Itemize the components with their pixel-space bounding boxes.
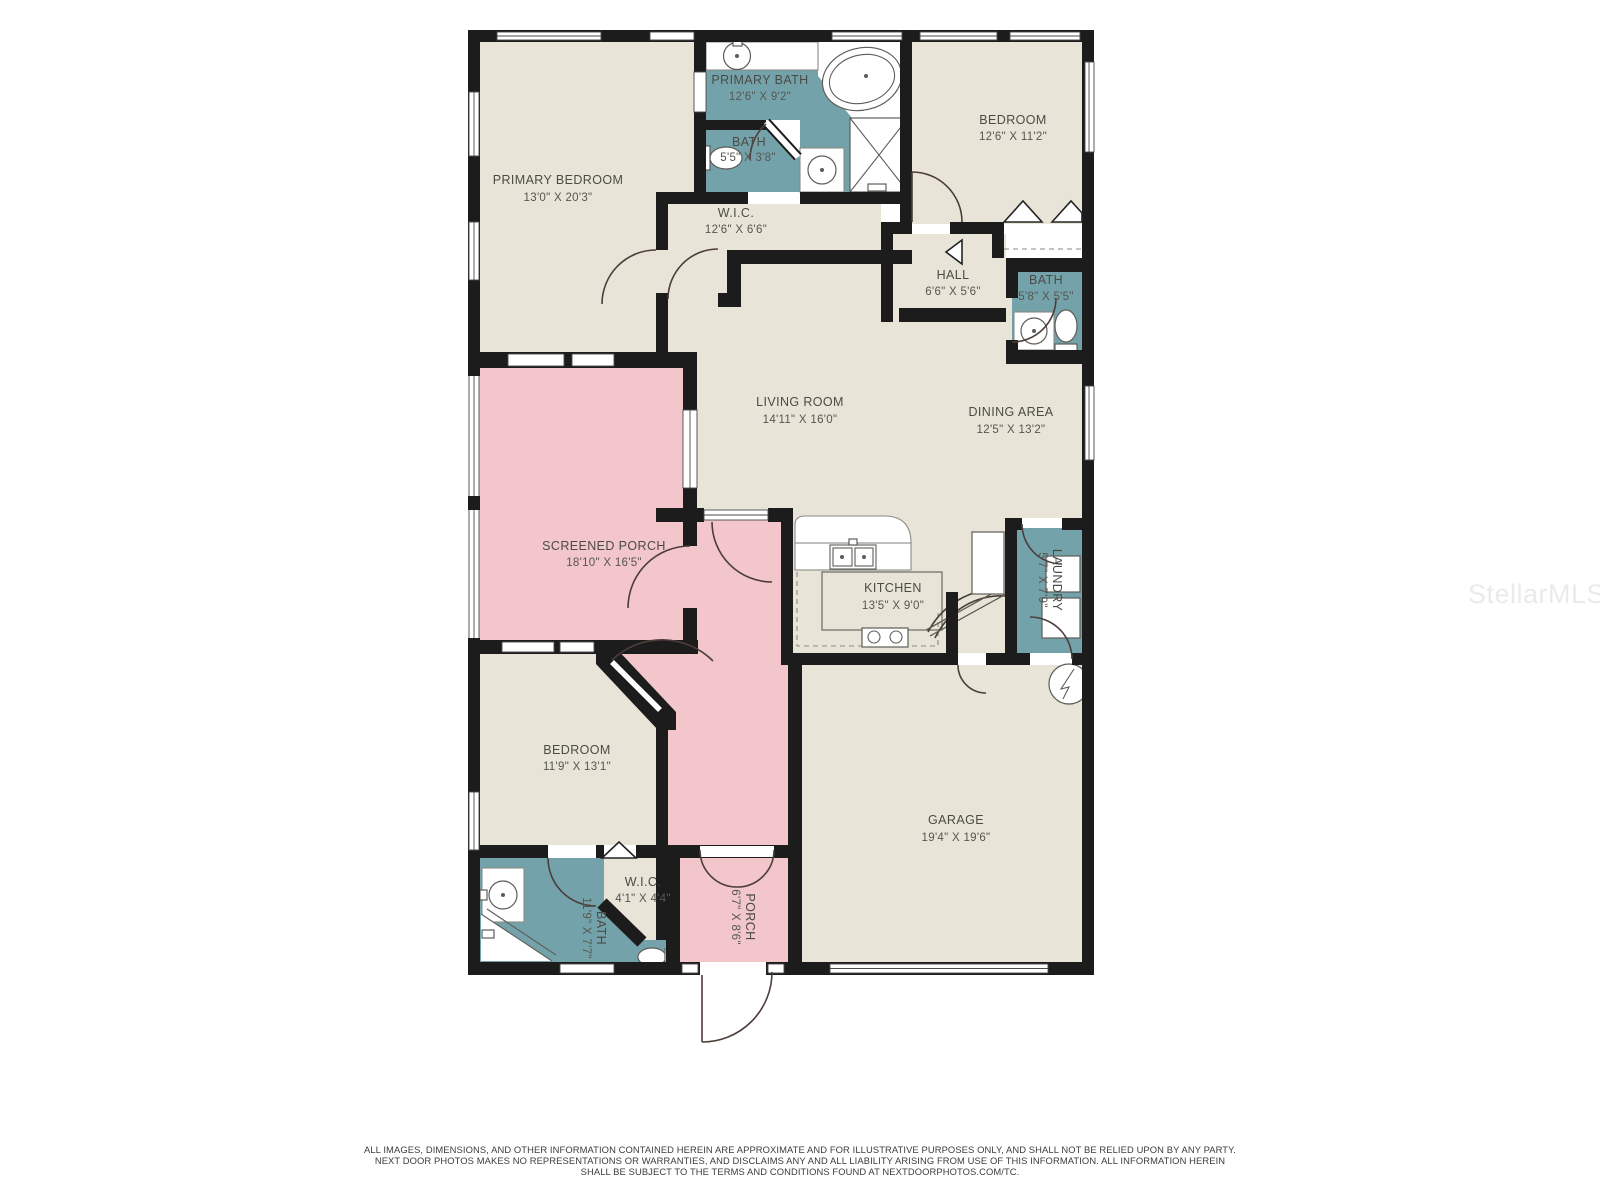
room-dims-screened-porch: 18'10" X 16'5" [566,557,642,569]
garage-door-icon [830,964,1048,973]
disclaimer: ALL IMAGES, DIMENSIONS, AND OTHER INFORM… [364,1144,1236,1177]
vanity-sink-icon [706,40,818,70]
room-label-garage: GARAGE [928,813,984,827]
room-dims-bath-2: 5'8" X 5'5" [1018,291,1074,303]
porch-door-opening [700,846,774,857]
front-door-icon [702,972,772,1042]
screen-wall [468,364,480,652]
room-dims-porch: 6'7" X 8'6" [729,889,741,945]
disclaimer-line-2: NEXT DOOR PHOTOS MAKES NO REPRESENTATION… [375,1155,1225,1166]
room-dims-bath-wc: 5'5" X 3'8" [720,152,776,164]
fridge-icon [972,532,1004,594]
room-dims-laundry: 5'7" X 7'9" [1036,552,1048,608]
room-label-bath-3: BATH [594,911,608,945]
room-label-bath-2: BATH [1029,273,1063,287]
room-dims-garage: 19'4" X 19'6" [922,832,991,844]
vanity-sink-icon [480,868,524,922]
room-label-primary-bath: PRIMARY BATH [711,73,808,87]
room-screened-porch [478,366,683,652]
room-dims-living-room: 14'11" X 16'0" [763,414,838,426]
room-label-dining-area: DINING AREA [969,405,1054,419]
floor-plan-svg: PRIMARY BEDROOM 13'0" X 20'3" PRIMARY BA… [0,0,1600,1200]
toilet-icon [1055,310,1077,353]
room-label-kitchen: KITCHEN [864,581,922,595]
room-label-screened-porch: SCREENED PORCH [542,539,666,553]
stove-icon [862,628,908,647]
disclaimer-line-1: ALL IMAGES, DIMENSIONS, AND OTHER INFORM… [364,1144,1236,1155]
room-label-bedroom-2: BEDROOM [979,113,1046,127]
room-label-primary-bedroom: PRIMARY BEDROOM [493,173,624,187]
watermark: StellarMLS [1468,579,1600,609]
room-wic-primary [668,204,881,293]
room-label-living-room: LIVING ROOM [756,395,844,409]
room-label-bedroom-3: BEDROOM [543,743,610,757]
room-dims-wic-primary: 12'6" X 6'6" [705,224,767,236]
room-dims-dining-area: 12'5" X 13'2" [977,424,1046,436]
front-door-opening [700,962,766,975]
room-label-bath-wc: BATH [732,135,766,149]
room-label-hall: HALL [937,268,970,282]
vanity-sink-icon [1014,312,1054,350]
room-dims-primary-bath: 12'6" X 9'2" [729,91,791,103]
room-label-wic-2: W.I.C. [625,875,661,889]
room-dims-wic-2: 4'1" X 4'4" [615,893,671,905]
vanity-sink-icon [800,148,844,192]
room-dims-bedroom-2: 12'6" X 11'2" [979,131,1047,143]
disclaimer-line-3: SHALL BE SUBJECT TO THE TERMS AND CONDIT… [581,1166,1020,1177]
floor-plan-page: PRIMARY BEDROOM 13'0" X 20'3" PRIMARY BA… [0,0,1600,1200]
room-dims-bedroom-3: 11'9" X 13'1" [543,761,611,773]
room-label-laundry: LAUNDRY [1050,549,1064,612]
room-dims-kitchen: 13'5" X 9'0" [862,600,924,612]
closet-strip [1004,224,1082,258]
room-dims-primary-bedroom: 13'0" X 20'3" [524,192,593,204]
shower-icon [850,118,908,192]
room-label-wic-primary: W.I.C. [718,206,754,220]
room-label-porch: PORCH [743,893,757,940]
room-dims-hall: 6'6" X 5'6" [925,286,981,298]
room-dims-bath-3: 11'9" X 7'7" [580,897,592,958]
